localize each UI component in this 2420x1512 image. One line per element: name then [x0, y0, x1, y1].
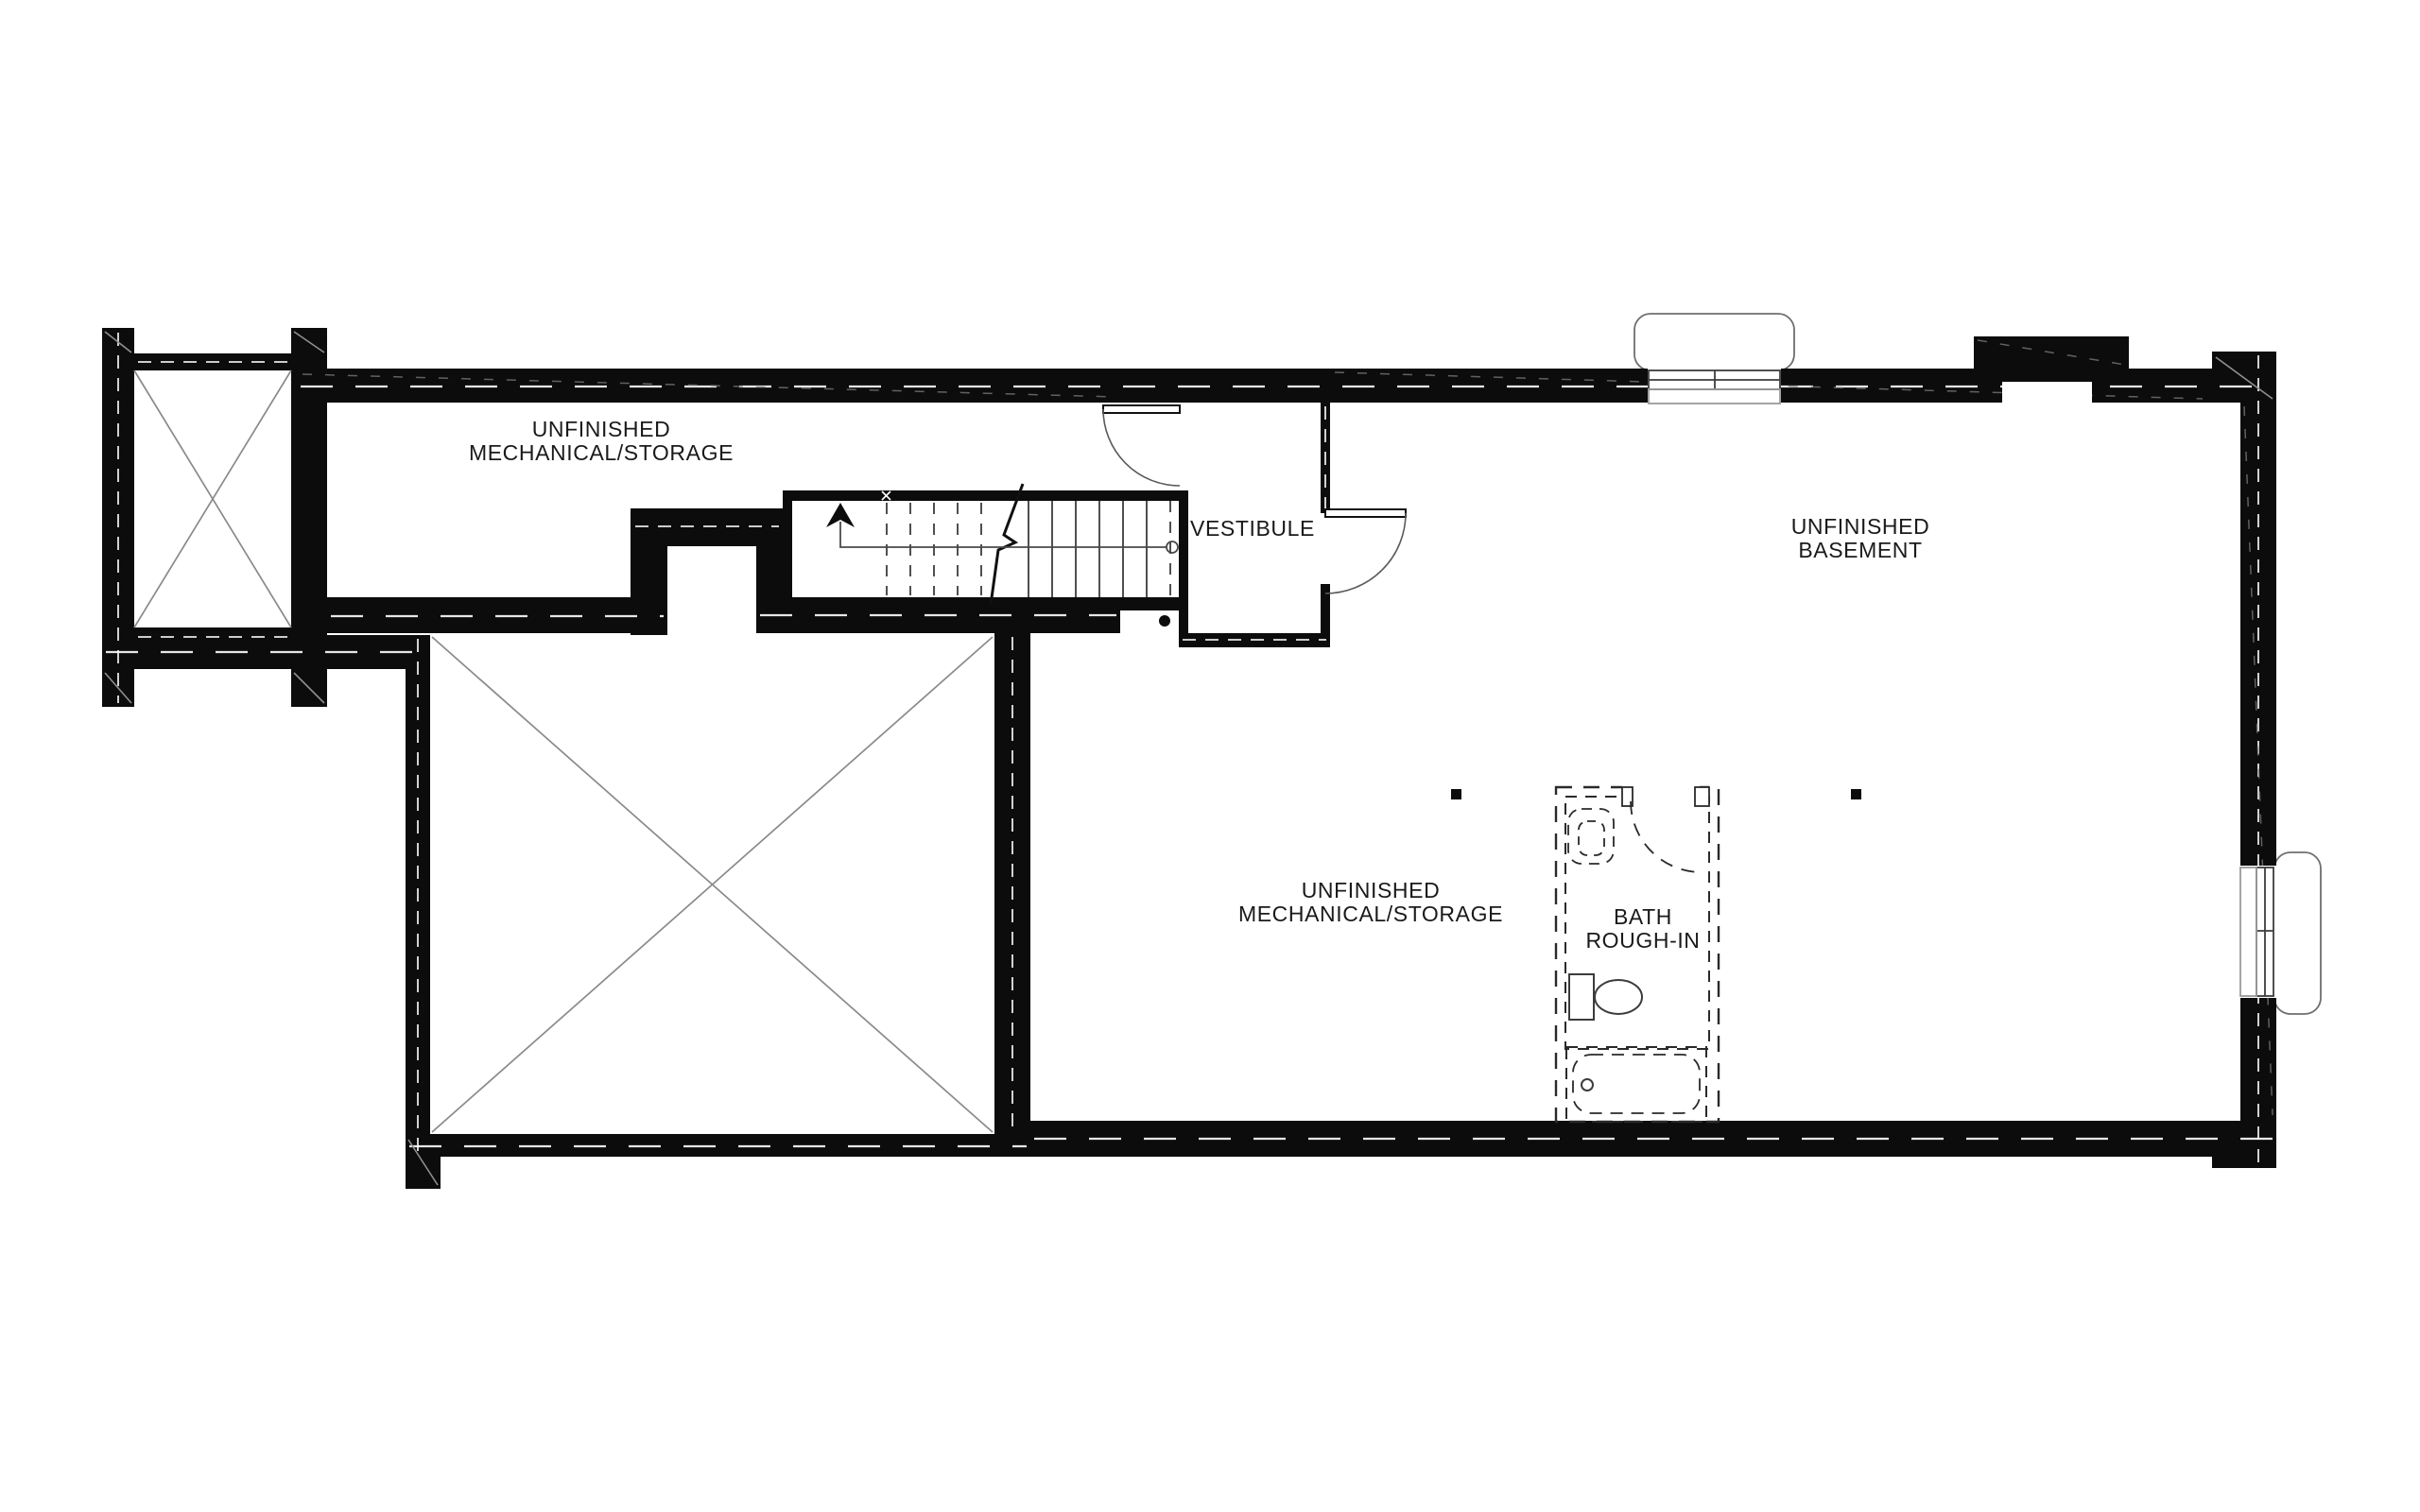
post-marker-vestibule: [1159, 615, 1170, 627]
areaway-x-marker: [134, 370, 291, 627]
room-label-basement-line1: UNFINISHED: [1791, 514, 1930, 539]
column-marker-left: [1451, 789, 1461, 799]
room-label-mech-storage-lower-line2: MECHANICAL/STORAGE: [1238, 902, 1503, 926]
door-swing-bath: [1631, 801, 1702, 872]
floor-plan-page: UNFINISHED MECHANICAL/STORAGE VESTIBULE …: [0, 0, 2420, 1512]
door-swing-arc: [1325, 513, 1406, 593]
door-vestibule-to-basement: [1325, 509, 1406, 593]
basement-window-north: [1648, 368, 1781, 404]
basement-window-east: [2238, 866, 2278, 998]
room-labels: UNFINISHED MECHANICAL/STORAGE VESTIBULE …: [469, 417, 1929, 953]
exterior-walls: [102, 328, 2276, 1189]
room-label-bath-line2: ROUGH-IN: [1585, 928, 1700, 953]
stairs: [826, 484, 1178, 605]
door-leaf: [1325, 509, 1406, 517]
room-label-mech-storage-upper-line2: MECHANICAL/STORAGE: [469, 440, 734, 465]
stair-break-line: [991, 484, 1023, 605]
toilet-icon: [1569, 974, 1642, 1020]
room-label-vestibule: VESTIBULE: [1190, 516, 1315, 541]
unexcavated-x-marker: [432, 637, 993, 1132]
door-swing-arc: [1103, 409, 1180, 486]
window-well-north: [1634, 314, 1794, 370]
stair-treads: [887, 501, 1170, 597]
wall-notch-opening: [2002, 382, 2092, 403]
column-marker-right: [1851, 789, 1861, 799]
room-label-bath-line1: BATH: [1614, 904, 1672, 929]
toilet-rough-in-icon: [1568, 809, 1614, 864]
door-leaf: [1103, 405, 1180, 413]
bathtub-icon: [1566, 1047, 1706, 1122]
wall-centerlines: [106, 333, 2273, 1162]
room-label-mech-storage-lower-line1: UNFINISHED: [1302, 878, 1441, 902]
floor-plan-drawing: UNFINISHED MECHANICAL/STORAGE VESTIBULE …: [0, 0, 2420, 1512]
door-corridor-to-vestibule: [1103, 405, 1180, 486]
door-jamb: [1695, 787, 1709, 806]
window-well-east: [2274, 852, 2321, 1014]
room-label-basement-line2: BASEMENT: [1798, 538, 1922, 562]
room-label-mech-storage-upper-line1: UNFINISHED: [532, 417, 671, 441]
